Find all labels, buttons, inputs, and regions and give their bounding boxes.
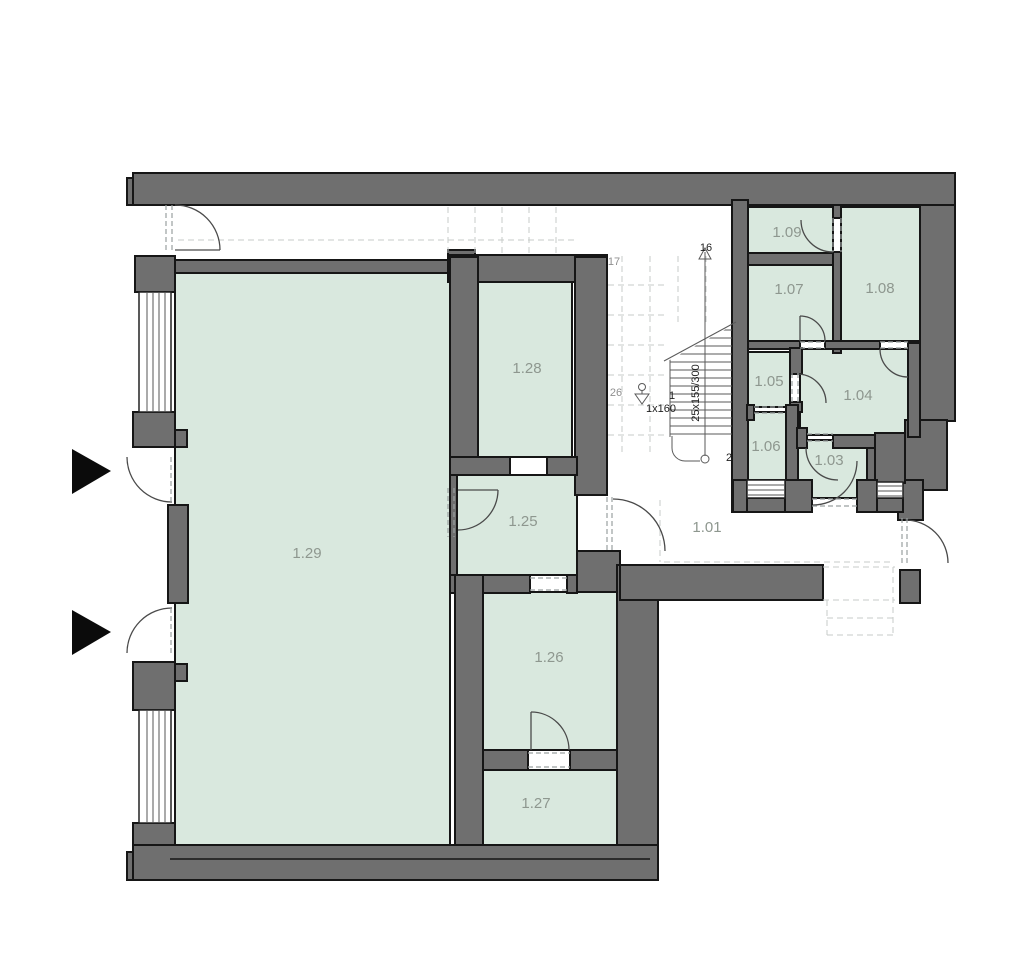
room-label-1-27: 1.27: [521, 795, 550, 812]
wall-stairhall-east: [732, 200, 748, 512]
window-west-south: [139, 710, 171, 823]
room-label-1-05: 1.05: [754, 373, 783, 390]
stair-step-26-label: 26: [610, 387, 622, 399]
floor-plan-page: 1.29 1.28 1.25 1.26 1.27 1.01 1.09 1.07 …: [0, 0, 1024, 963]
room-label-1-07: 1.07: [774, 281, 803, 298]
room-label-1-06: 1.06: [751, 438, 780, 455]
opening-1-25-to-1-26: [530, 578, 567, 590]
stair-break-line: [664, 322, 736, 361]
wall-inner-north: [150, 260, 450, 273]
room-label-1-29: 1.29: [292, 545, 321, 562]
door-entrance-1: [127, 457, 172, 502]
wall-top: [133, 173, 955, 205]
wall-corridor-south: [620, 565, 823, 600]
stair-step-17-label: 17: [608, 256, 620, 268]
door-entrance-2: [127, 608, 172, 653]
room-label-1-26: 1.26: [534, 649, 563, 666]
stair-start-point: [701, 455, 709, 463]
room-label-1-25: 1.25: [508, 513, 537, 530]
stair-step-2-label: 2: [726, 452, 732, 464]
room-label-1-01: 1.01: [692, 519, 721, 536]
wall-central: [450, 257, 478, 457]
room-label-1-04: 1.04: [843, 387, 872, 404]
wall-entrance-pier: [168, 505, 188, 603]
wall-bottom: [133, 845, 658, 880]
stair-step-1-label: 1: [669, 390, 675, 402]
room-areas: [175, 207, 920, 845]
room-label-1-28: 1.28: [512, 360, 541, 377]
room-label-1-08: 1.08: [865, 280, 894, 297]
entrance-arrow-icon: [72, 610, 111, 655]
stair-first-riser-label: 1x160: [646, 403, 676, 415]
door-1-25-to-1-01: [607, 497, 665, 551]
wall-stairhall-west: [575, 257, 607, 495]
wall-right: [920, 205, 955, 421]
level-marker-icon: [635, 384, 649, 405]
room-label-1-09: 1.09: [772, 224, 801, 241]
door-side-exit: [902, 518, 948, 563]
room-1-07-area: [748, 265, 833, 341]
window-west-north: [139, 292, 171, 412]
entrance-arrow-icon: [72, 449, 111, 494]
stair-step-16-label: 16: [700, 242, 712, 254]
floor-plan-drawing: 1.29 1.28 1.25 1.26 1.27 1.01 1.09 1.07 …: [0, 0, 1024, 963]
stair-flight-spec-label: 25x155/300: [690, 364, 702, 422]
wall-east-band: [617, 565, 658, 845]
room-label-1-03: 1.03: [814, 452, 843, 469]
stair-first-step-curve: [672, 436, 700, 461]
room-1-08-area: [841, 207, 920, 341]
room-1-26-area: [483, 592, 617, 750]
door-strip-west: [166, 205, 220, 250]
entrance-markers: [72, 449, 111, 655]
